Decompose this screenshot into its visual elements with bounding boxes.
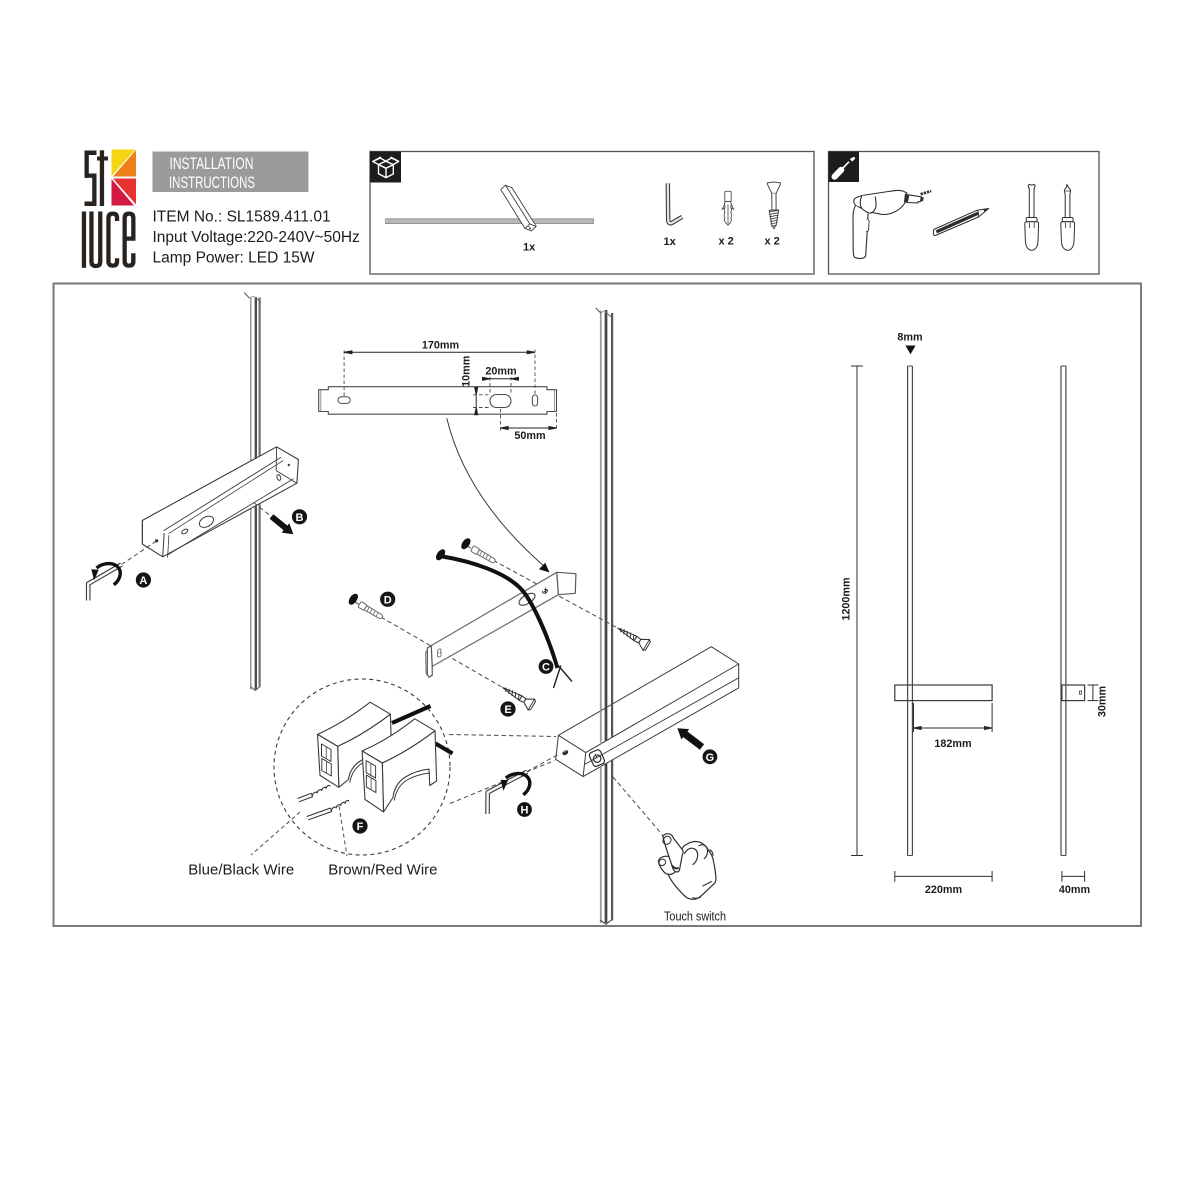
svg-text:F: F (357, 821, 364, 833)
svg-text:30mm: 30mm (1097, 686, 1109, 717)
svg-text:ITEM No.: SL1589.411.01: ITEM No.: SL1589.411.01 (153, 208, 331, 225)
svg-text:20mm: 20mm (485, 366, 516, 378)
svg-text:170mm: 170mm (422, 340, 459, 352)
svg-text:40mm: 40mm (1059, 884, 1090, 896)
svg-text:50mm: 50mm (514, 430, 545, 442)
svg-text:1x: 1x (664, 236, 677, 248)
svg-text:220mm: 220mm (925, 884, 962, 896)
svg-text:1x: 1x (523, 242, 536, 254)
svg-text:182mm: 182mm (934, 738, 971, 750)
svg-text:B: B (296, 512, 304, 524)
svg-text:Touch switch: Touch switch (664, 910, 726, 924)
svg-text:x 2: x 2 (719, 236, 734, 248)
svg-text:10mm: 10mm (461, 356, 473, 387)
svg-text:G: G (706, 752, 715, 764)
svg-text:E: E (504, 704, 511, 716)
svg-text:Brown/Red Wire: Brown/Red Wire (328, 862, 437, 879)
svg-text:Lamp Power: LED 15W: Lamp Power: LED 15W (153, 250, 315, 267)
svg-text:x 2: x 2 (765, 236, 780, 248)
svg-text:Input Voltage:220-240V~50Hz: Input Voltage:220-240V~50Hz (153, 229, 360, 246)
svg-text:A: A (139, 575, 147, 587)
svg-text:INSTALLATION: INSTALLATION (170, 155, 254, 173)
svg-text:INSTRUCTIONS: INSTRUCTIONS (169, 174, 255, 192)
svg-text:1200mm: 1200mm (841, 577, 853, 620)
svg-text:H: H (521, 805, 529, 817)
svg-text:D: D (384, 594, 392, 606)
svg-text:8mm: 8mm (897, 332, 922, 344)
svg-text:C: C (542, 662, 550, 674)
svg-text:Blue/Black Wire: Blue/Black Wire (188, 862, 294, 879)
